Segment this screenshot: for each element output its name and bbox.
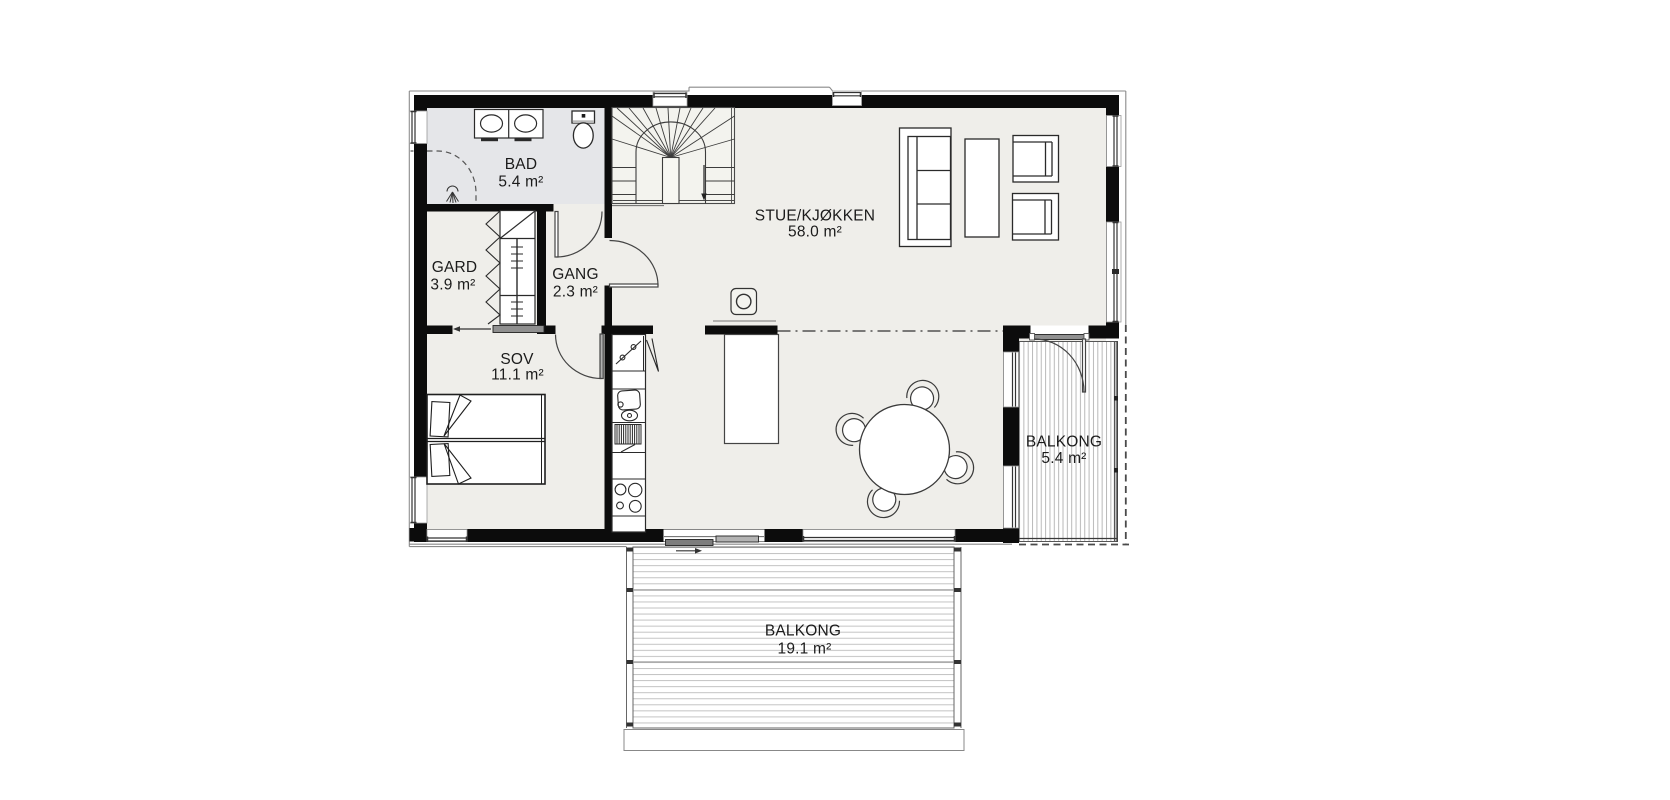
svg-text:BAD: BAD — [505, 156, 537, 173]
svg-text:STUE/KJØKKEN: STUE/KJØKKEN — [755, 208, 875, 225]
svg-text:BALKONG: BALKONG — [1026, 434, 1102, 451]
svg-text:11.1 m²: 11.1 m² — [491, 367, 544, 384]
svg-text:5.4 m²: 5.4 m² — [1041, 450, 1086, 467]
svg-text:58.0 m²: 58.0 m² — [788, 224, 842, 241]
svg-text:GARD: GARD — [432, 259, 478, 276]
svg-text:SOV: SOV — [500, 351, 534, 368]
svg-text:GANG: GANG — [552, 266, 598, 283]
svg-text:5.4 m²: 5.4 m² — [498, 174, 543, 191]
svg-text:19.1 m²: 19.1 m² — [778, 641, 832, 658]
svg-text:BALKONG: BALKONG — [765, 623, 841, 640]
svg-text:2.3 m²: 2.3 m² — [553, 284, 598, 301]
svg-text:3.9 m²: 3.9 m² — [430, 277, 475, 294]
